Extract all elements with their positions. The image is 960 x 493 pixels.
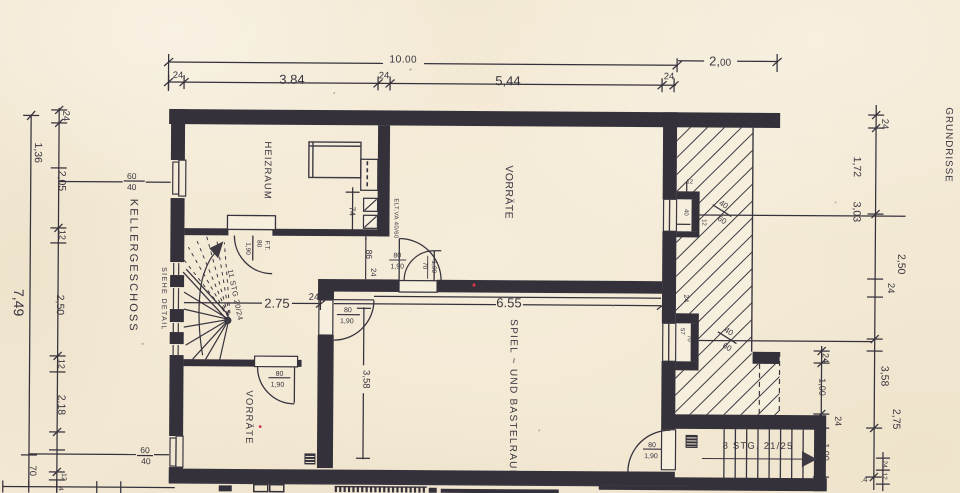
svg-text:3,58: 3,58 <box>360 370 371 389</box>
svg-text:24: 24 <box>664 71 675 82</box>
svg-text:1,90: 1,90 <box>390 263 404 270</box>
svg-text:24: 24 <box>821 353 831 363</box>
svg-text:12: 12 <box>57 230 67 240</box>
svg-text:.4: .4 <box>861 475 868 484</box>
svg-text:60: 60 <box>140 445 150 455</box>
svg-text:12: 12 <box>686 179 693 185</box>
svg-text:VORRÄTE: VORRÄTE <box>243 390 254 444</box>
svg-text:KELLERGESCHOSS: KELLERGESCHOSS <box>127 199 140 333</box>
svg-text:24: 24 <box>369 268 378 276</box>
svg-text:60: 60 <box>127 171 137 181</box>
svg-text:12: 12 <box>700 219 706 226</box>
svg-text:1,90: 1,90 <box>340 318 354 325</box>
svg-text:3,58: 3,58 <box>878 366 890 387</box>
svg-text:1,00: 1,00 <box>817 378 827 396</box>
svg-text:57: 57 <box>679 328 685 335</box>
svg-text:GRUNDRISSE: GRUNDRISSE <box>943 107 954 182</box>
svg-text:1,36: 1,36 <box>32 143 44 164</box>
svg-text:2,50: 2,50 <box>895 254 907 275</box>
svg-text:24: 24 <box>173 70 184 81</box>
svg-text:1,72: 1,72 <box>851 157 863 178</box>
svg-text:24: 24 <box>881 460 888 468</box>
svg-text:40: 40 <box>127 182 137 192</box>
svg-text:12: 12 <box>57 359 67 369</box>
svg-text:2,18: 2,18 <box>55 395 67 416</box>
svg-text:24: 24 <box>379 70 390 81</box>
svg-text:HEIZRAUM: HEIZRAUM <box>262 141 273 199</box>
svg-text:2,00: 2,00 <box>709 54 732 69</box>
svg-text:1,90: 1,90 <box>244 242 251 255</box>
svg-text:1,00: 1,00 <box>821 443 831 461</box>
svg-text:74: 74 <box>348 206 358 216</box>
svg-text:24: 24 <box>833 416 843 426</box>
svg-text:40: 40 <box>683 209 689 216</box>
svg-text:24: 24 <box>885 283 896 294</box>
svg-text:F.T.: F.T. <box>263 241 270 251</box>
svg-text:5,44: 5,44 <box>495 73 520 88</box>
svg-text:SPIEL ~ UND BASTELRAUM: SPIEL ~ UND BASTELRAUM <box>507 319 519 479</box>
svg-text:40: 40 <box>141 456 151 466</box>
svg-text:2.75: 2.75 <box>264 296 289 311</box>
svg-text:4: 4 <box>57 487 64 491</box>
svg-text:3,03: 3,03 <box>850 202 862 223</box>
svg-text:8 STG. 21/25: 8 STG. 21/25 <box>723 441 794 452</box>
svg-text:7,49: 7,49 <box>11 289 27 317</box>
svg-text:80: 80 <box>393 252 401 259</box>
svg-text:80: 80 <box>276 371 284 378</box>
svg-text:24: 24 <box>60 111 71 122</box>
svg-text:1,90: 1,90 <box>271 382 285 389</box>
svg-text:1,90: 1,90 <box>430 260 437 273</box>
svg-text:2,50: 2,50 <box>54 295 66 316</box>
svg-text:2,05: 2,05 <box>56 171 68 192</box>
svg-text:ELT.VA 40/60: ELT.VA 40/60 <box>392 198 398 239</box>
svg-text:SIEHE DETAIL: SIEHE DETAIL <box>160 267 167 331</box>
svg-text:80: 80 <box>648 442 656 449</box>
svg-text:24: 24 <box>879 119 890 130</box>
svg-text:10.00: 10.00 <box>389 53 417 65</box>
svg-text:70: 70 <box>421 262 428 270</box>
svg-text:70: 70 <box>27 465 38 476</box>
svg-text:80: 80 <box>255 240 262 248</box>
svg-text:6.55: 6.55 <box>496 295 521 310</box>
svg-text:12: 12 <box>881 472 888 480</box>
svg-text:24: 24 <box>309 292 320 303</box>
svg-text:3.84: 3.84 <box>279 72 304 87</box>
svg-text:2,75: 2,75 <box>890 409 902 430</box>
svg-text:80: 80 <box>344 307 352 314</box>
svg-text:VORRÄTE: VORRÄTE <box>502 165 514 219</box>
svg-text:70: 70 <box>686 335 692 342</box>
svg-text:86: 86 <box>364 250 374 260</box>
svg-text:1,90: 1,90 <box>644 453 658 460</box>
svg-text:24: 24 <box>682 294 689 302</box>
svg-text:12: 12 <box>60 473 67 481</box>
